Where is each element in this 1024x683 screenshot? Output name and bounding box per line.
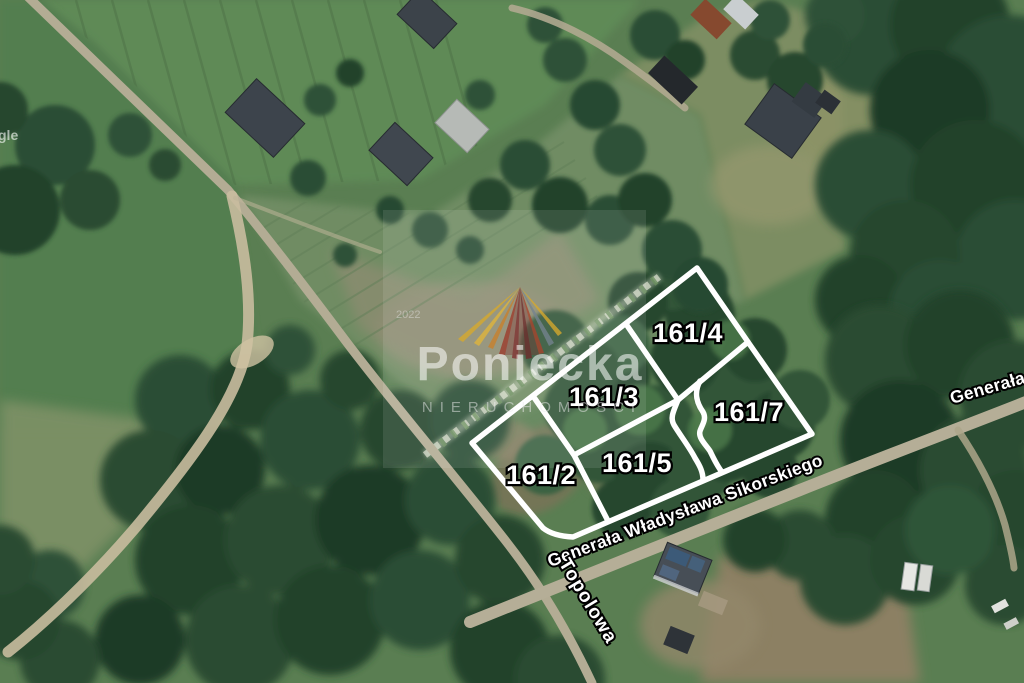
imagery-year: 2022 [396, 309, 420, 321]
plot-label-161-2: 161/2 [506, 460, 576, 490]
plot-label-161-7: 161/7 [714, 397, 784, 427]
map-canvas: 161/2 161/3 161/4 161/5 161/7 Generała W… [0, 0, 1024, 683]
plot-label-161-4: 161/4 [653, 318, 723, 348]
plot-label-161-5: 161/5 [602, 448, 672, 478]
google-logo-fragment: gle [0, 127, 18, 143]
satellite-map: 161/2 161/3 161/4 161/5 161/7 Generała W… [0, 0, 1024, 683]
watermark-subtitle: NIERUCHOMOŚCI [422, 398, 642, 416]
watermark-brand: Poniecka [417, 338, 644, 391]
